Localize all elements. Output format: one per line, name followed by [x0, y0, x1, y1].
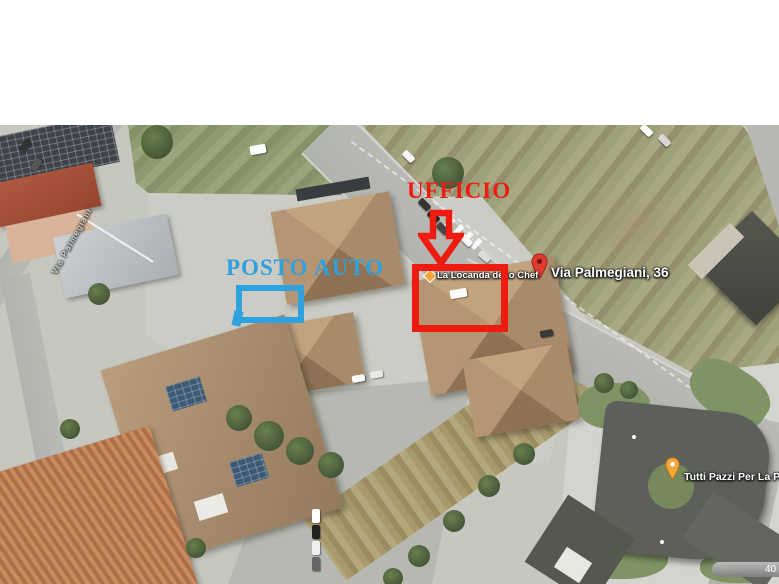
car — [312, 557, 320, 571]
tree — [594, 373, 614, 393]
car — [312, 541, 320, 555]
tree — [141, 125, 173, 159]
car — [312, 509, 320, 523]
field-brown-patch — [560, 185, 710, 275]
scale-bar-text: 40 — [765, 564, 776, 575]
tree — [226, 405, 252, 431]
address-label: Via Palmegiani, 36 — [551, 265, 669, 280]
tree — [286, 437, 314, 465]
roof-vent — [660, 540, 664, 544]
annotated-satellite-screenshot: Via Palmegiani Via Palmegiani, 36 La Loc… — [0, 0, 779, 584]
poi-label-pizza: Tutti Pazzi Per La Pizza — [684, 471, 779, 483]
office-highlight-box — [412, 264, 508, 332]
tree — [620, 381, 638, 399]
tree — [254, 421, 284, 451]
tree — [60, 419, 80, 439]
tree — [383, 568, 403, 584]
ufficio-arrow-icon — [418, 209, 464, 267]
scale-bar: 40 — [712, 562, 779, 577]
satellite-map: Via Palmegiani Via Palmegiani, 36 La Loc… — [0, 125, 779, 584]
tree — [88, 283, 110, 305]
tree — [513, 443, 535, 465]
tree — [318, 452, 344, 478]
tree — [408, 545, 430, 567]
tree — [478, 475, 500, 497]
orange-map-pin-icon — [665, 457, 680, 480]
roof-vent — [632, 435, 636, 439]
parking-highlight-box — [236, 285, 304, 323]
tree — [186, 538, 206, 558]
car — [312, 525, 320, 539]
tree — [443, 510, 465, 532]
ufficio-annotation-label: UFFICIO — [407, 178, 511, 204]
posto-auto-annotation-label: POSTO AUTO — [226, 255, 384, 281]
